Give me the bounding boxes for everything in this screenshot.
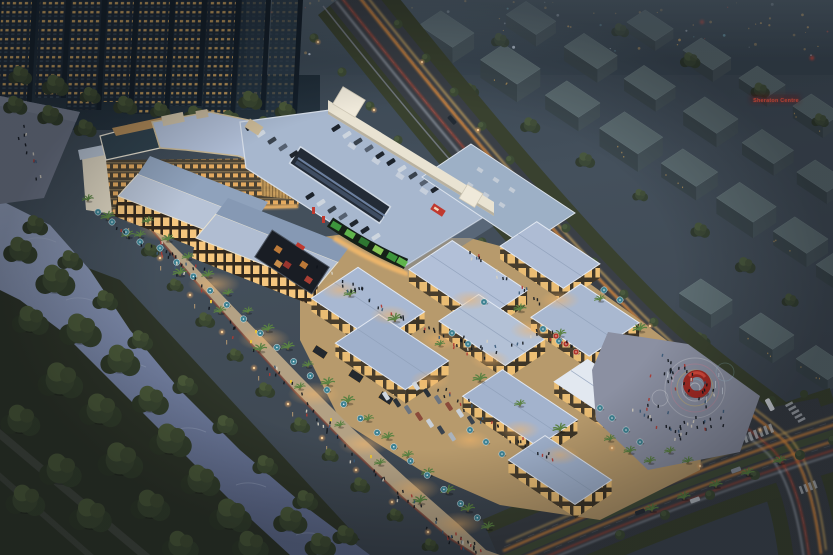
aerial-rendering: Sheraton Centre Sheraton Centre (0, 0, 833, 555)
scene-canvas: Sheraton Centre Sheraton Centre (0, 0, 833, 555)
vignette (0, 0, 833, 555)
